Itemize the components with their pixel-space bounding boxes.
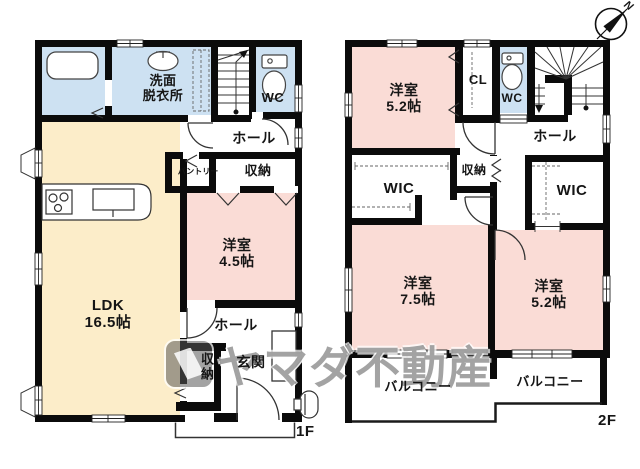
room-label-wc-2f: WC xyxy=(496,92,528,106)
room-label-entrance: 玄関 xyxy=(223,354,279,370)
room-label-hall-1f-lower: ホール xyxy=(192,317,280,333)
room-label-wic-left: WIC xyxy=(363,180,435,197)
kitchen-counter xyxy=(42,184,151,220)
room-label-hall-1f-upper: ホール xyxy=(210,130,298,146)
stairs-2f xyxy=(535,47,603,113)
washbasin-icon xyxy=(148,52,178,71)
room-label-closet-1f-lower: 収納 xyxy=(189,352,213,382)
room-label-cl: CL xyxy=(461,73,495,88)
room-label-pantry: パントリー xyxy=(177,167,219,176)
floor-label-2f: 2F xyxy=(598,412,617,429)
room-label-closet-2f: 収納 xyxy=(449,164,499,178)
room-label-balcony-left: バルコニー xyxy=(356,380,480,395)
room-label-western-1f: 洋室 4.5帖 xyxy=(196,237,278,269)
stairs-1f xyxy=(218,50,249,115)
room-label-washroom: 洗面 脱衣所 xyxy=(131,74,195,104)
bathtub-icon xyxy=(47,52,98,79)
floor-label-1f: 1F xyxy=(296,423,315,440)
balcony-outline xyxy=(352,404,602,422)
room-label-western-2f-b: 洋室 7.5帖 xyxy=(377,275,459,307)
bay-window xyxy=(21,148,35,417)
floorplan-graphics xyxy=(0,0,640,469)
floorplan-canvas: ヤマダ不動産 洗面 脱衣所 WC ホール パントリー 収納 洋室 4.5帖 LD… xyxy=(0,0,640,469)
porch-outline xyxy=(176,423,295,438)
room-label-closet-1f-upper: 収納 xyxy=(218,164,298,179)
room-label-balcony-right: バルコニー xyxy=(488,375,612,390)
room-label-ldk: LDK 16.5帖 xyxy=(56,297,160,332)
room-label-hall-2f: ホール xyxy=(511,128,599,144)
compass-icon xyxy=(596,9,628,40)
room-label-wic-right: WIC xyxy=(536,182,608,199)
room-label-western-2f-a: 洋室 5.2帖 xyxy=(363,82,445,114)
room-label-wc-1f: WC xyxy=(252,91,294,106)
room-label-western-2f-c: 洋室 5.2帖 xyxy=(508,278,590,310)
toilet-icon-2f xyxy=(502,53,523,90)
kitchen-sink-icon xyxy=(93,189,134,210)
